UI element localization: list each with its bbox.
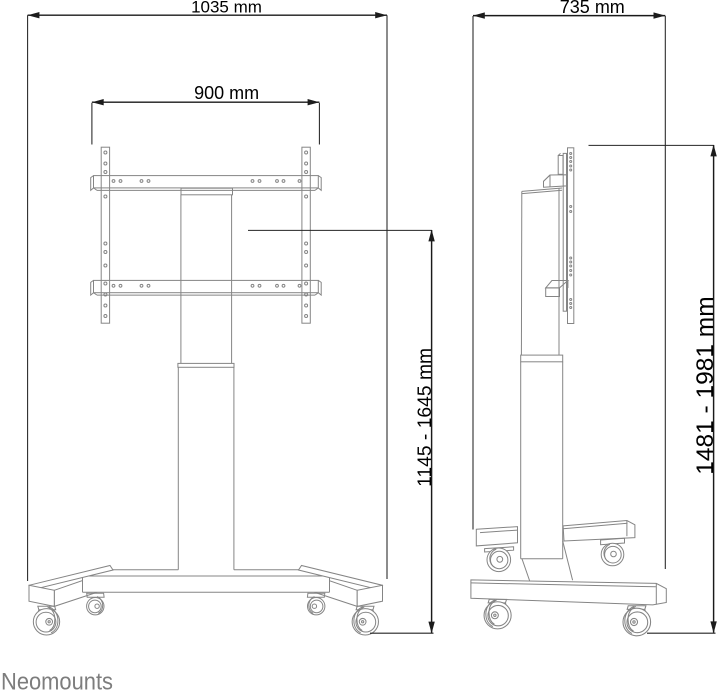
svg-text:Neomounts: Neomounts bbox=[1, 669, 113, 690]
svg-text:900 mm: 900 mm bbox=[194, 83, 259, 103]
svg-text:1145 - 1645 mm: 1145 - 1645 mm bbox=[415, 348, 436, 487]
svg-text:1035 mm: 1035 mm bbox=[191, 0, 262, 17]
svg-text:1481 - 1981 mm: 1481 - 1981 mm bbox=[692, 296, 719, 474]
svg-text:735 mm: 735 mm bbox=[560, 0, 625, 17]
